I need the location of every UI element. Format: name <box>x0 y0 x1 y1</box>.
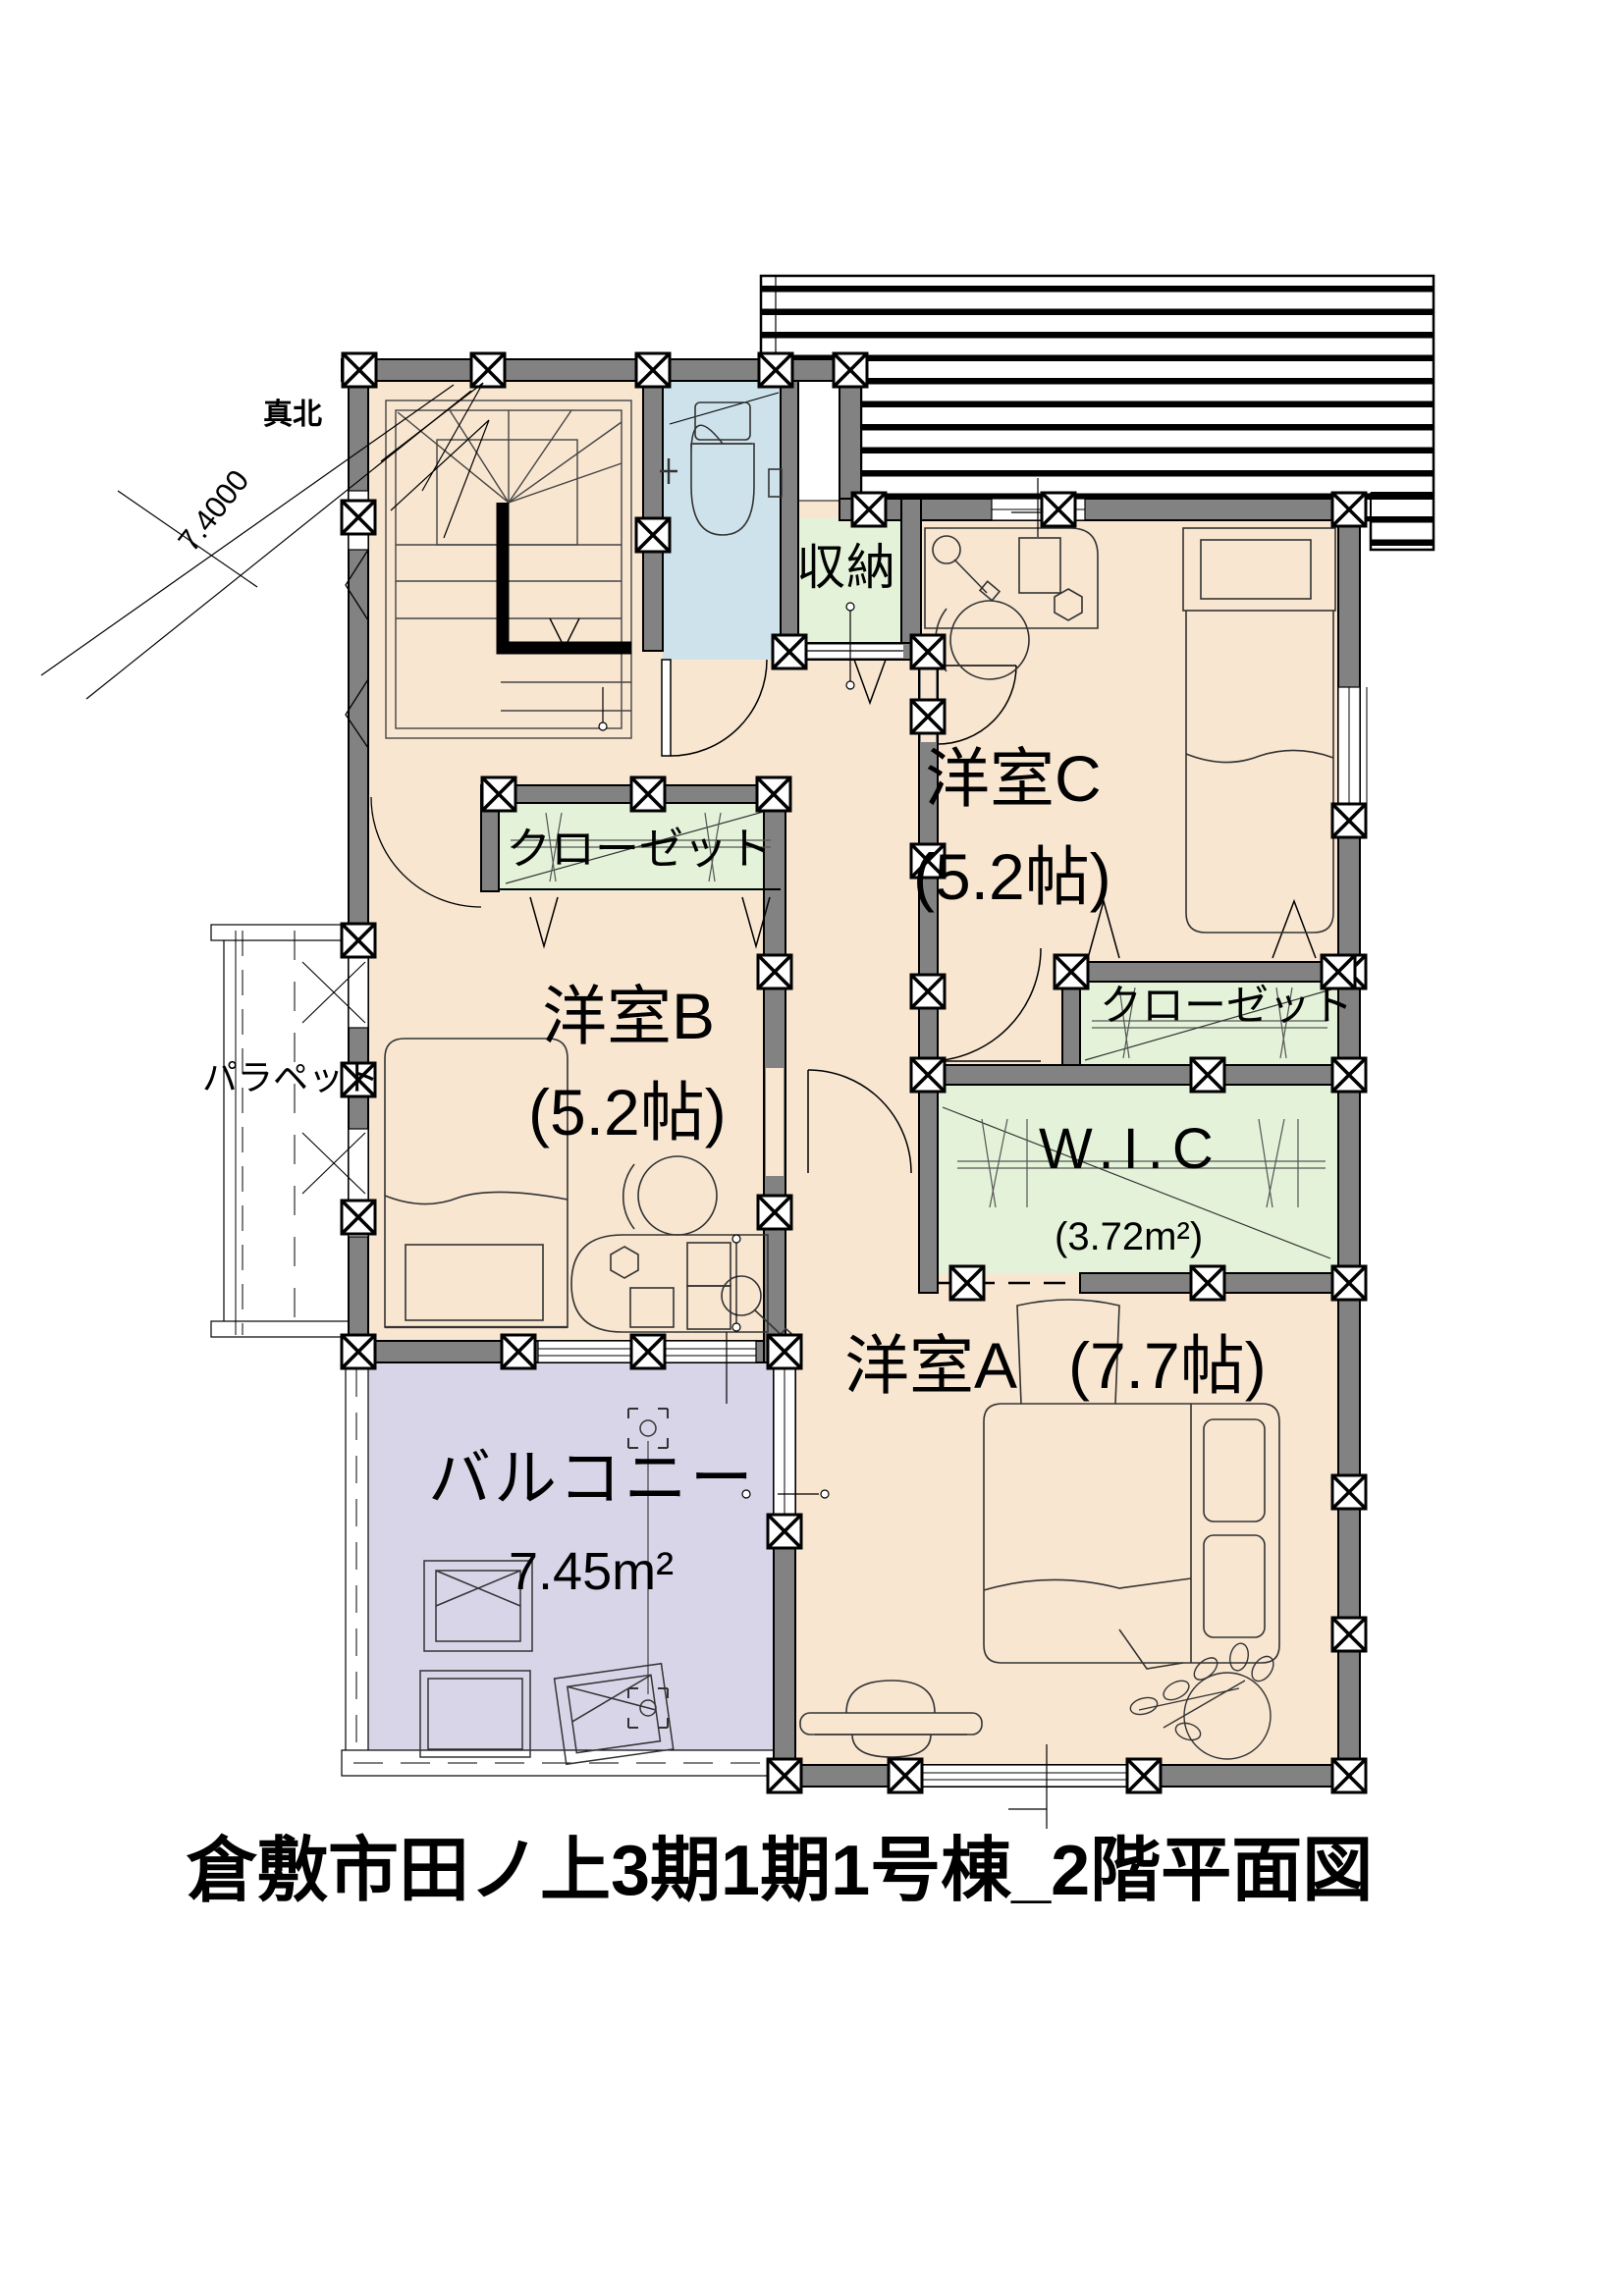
room-size-western-c: (5.2帖) <box>913 844 1111 909</box>
room-label-closet-b: クローゼット <box>507 827 772 871</box>
plan-title: 倉敷市田ノ上3期1期1号棟_2階平面図 <box>187 1836 1373 1906</box>
compass-north-label: 真北 <box>263 400 322 430</box>
toilet-floor <box>663 381 781 660</box>
floorplan-page: 真北 7.4000 収納 洋室C (5.2帖) クローゼット 洋室B (5.2帖… <box>0 0 1624 2296</box>
label-parapet: パラペット <box>202 1060 379 1095</box>
room-label-western-c: 洋室C <box>925 746 1102 811</box>
room-label-western-a: 洋室A <box>844 1333 1017 1398</box>
room-size-wic: (3.72m²) <box>1055 1217 1203 1256</box>
plan-linework <box>0 0 1624 2296</box>
room-size-western-a: (7.7帖) <box>1068 1333 1267 1398</box>
room-label-balcony: バルコニー <box>428 1447 756 1510</box>
room-label-western-b: 洋室B <box>542 984 715 1048</box>
room-label-closet-c: クローゼット <box>1100 986 1353 1028</box>
room-label-wic: W.I.C <box>1039 1121 1222 1178</box>
room-size-balcony: 7.45m² <box>509 1545 674 1598</box>
room-size-western-b: (5.2帖) <box>528 1080 727 1145</box>
room-label-storage: 収納 <box>796 543 896 592</box>
